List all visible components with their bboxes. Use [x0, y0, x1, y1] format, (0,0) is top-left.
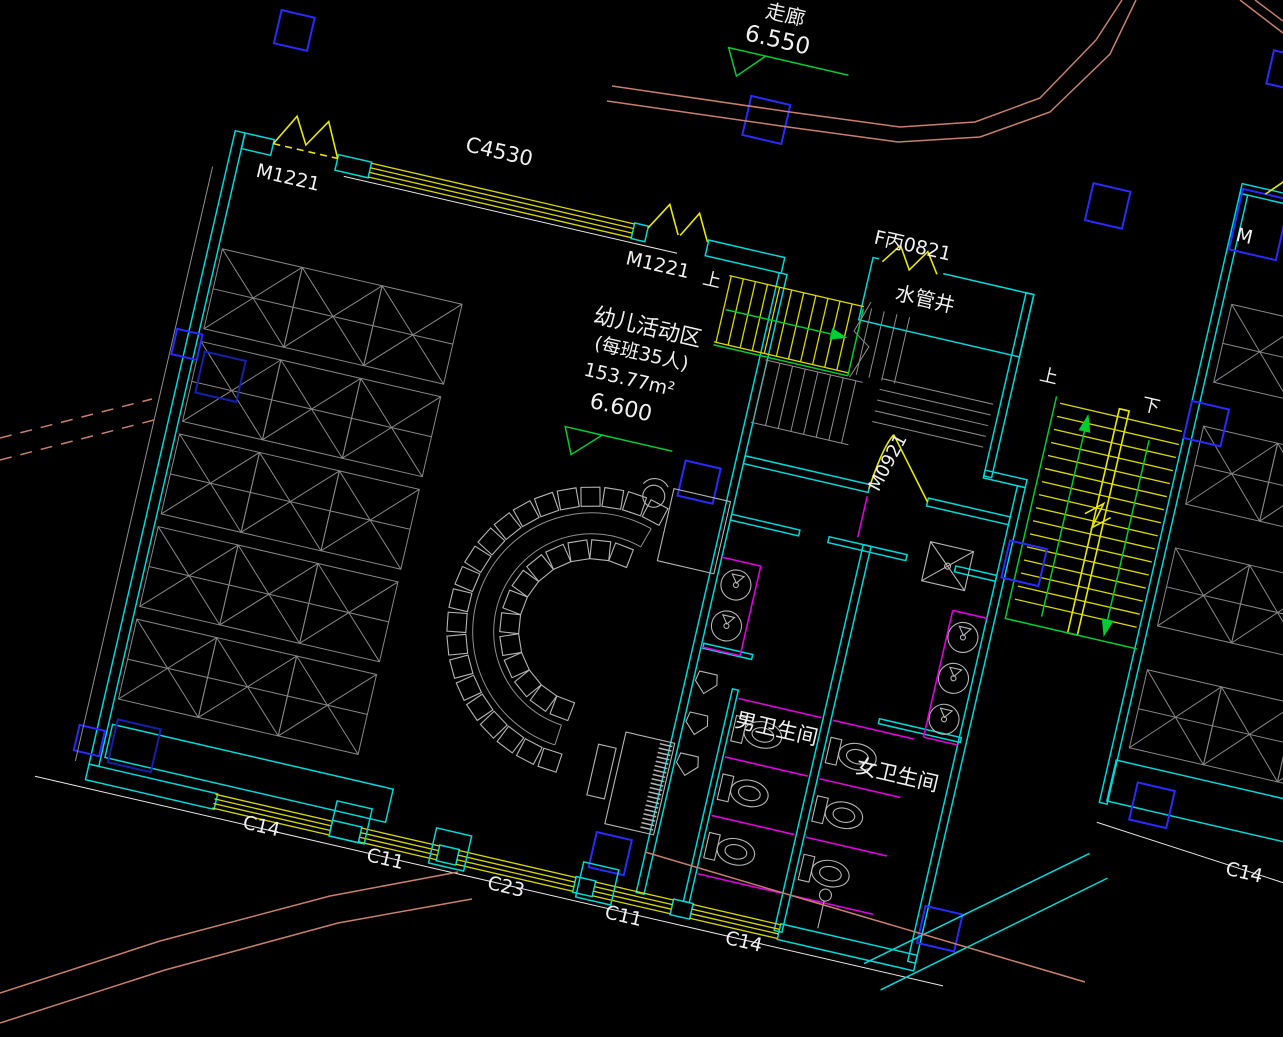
cad-floor-plan-canvas: 走廊 6.550 C4530 M1221 M1221 F丙0821 水管井 幼儿…	[0, 0, 1283, 1037]
canvas-background	[0, 0, 1283, 1037]
